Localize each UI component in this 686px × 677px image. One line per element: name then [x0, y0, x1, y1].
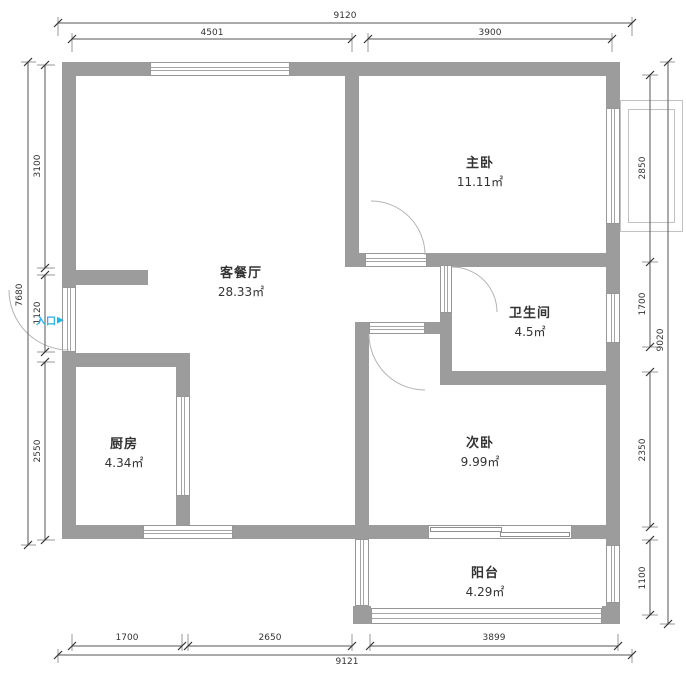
room-label-balcony: 阳台 4.29㎡: [466, 562, 505, 600]
dim-bottom-total: 9121: [336, 657, 359, 667]
room-name-bathroom: 卫生间: [509, 302, 551, 321]
dimension-lines: [28, 23, 668, 655]
room-area-kitchen: 4.34㎡: [105, 454, 144, 471]
room-name-balcony: 阳台: [466, 562, 505, 581]
room-name-living: 客餐厅: [218, 262, 264, 281]
room-label-master: 主卧 11.11㎡: [457, 152, 503, 190]
dim-left-lower: 2550: [33, 440, 43, 463]
floor-plan: 客餐厅 28.33㎡ 主卧 11.11㎡ 卫生间 4.5㎡ 厨房 4.34㎡ 次…: [0, 0, 686, 677]
dim-bottom-balcony: 3899: [483, 633, 506, 643]
entrance-arrow-icon: ▶: [57, 315, 64, 325]
dim-right-second: 2350: [638, 439, 648, 462]
room-label-second: 次卧 9.99㎡: [461, 432, 500, 470]
entrance-label: 入口▶: [36, 313, 64, 328]
dim-right-bathroom: 1700: [638, 293, 648, 316]
room-name-second: 次卧: [461, 432, 500, 451]
room-area-bathroom: 4.5㎡: [509, 323, 551, 340]
dim-right-total: 9020: [656, 329, 666, 352]
room-name-kitchen: 厨房: [105, 433, 144, 452]
dim-left-upper: 3100: [33, 155, 43, 178]
room-label-living: 客餐厅 28.33㎡: [218, 262, 264, 300]
room-label-kitchen: 厨房 4.34㎡: [105, 433, 144, 471]
room-label-bathroom: 卫生间 4.5㎡: [509, 302, 551, 340]
extension-lines: [21, 17, 675, 663]
dim-bottom-kitchen: 1700: [116, 633, 139, 643]
dim-bottom-living: 2650: [259, 633, 282, 643]
dim-top-right: 3900: [479, 28, 502, 38]
dim-right-balcony: 1100: [638, 567, 648, 590]
room-name-master: 主卧: [457, 152, 503, 171]
dim-left-total: 7680: [15, 284, 25, 307]
room-area-balcony: 4.29㎡: [466, 583, 505, 600]
entrance-text: 入口: [36, 313, 56, 328]
room-area-master: 11.11㎡: [457, 173, 503, 190]
dim-top-total: 9120: [334, 11, 357, 21]
room-area-living: 28.33㎡: [218, 283, 264, 300]
dim-right-master: 2850: [638, 157, 648, 180]
room-area-second: 9.99㎡: [461, 453, 500, 470]
lines-layer: [0, 0, 686, 677]
dim-top-left: 4501: [201, 28, 224, 38]
dimension-ticks: [24, 19, 672, 659]
